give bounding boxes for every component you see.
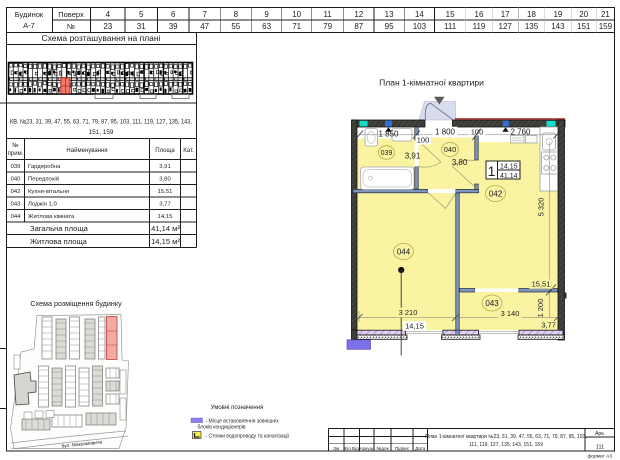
svg-text:1 200: 1 200 [536, 299, 545, 318]
svg-text:15: 15 [446, 10, 455, 19]
svg-text:042: 042 [11, 189, 21, 195]
svg-text:100: 100 [471, 128, 484, 137]
svg-text:20: 20 [579, 10, 588, 19]
svg-text:8: 8 [234, 10, 239, 19]
svg-text:6: 6 [171, 10, 176, 19]
svg-text:Умовні позначення: Умовні позначення [211, 405, 264, 411]
svg-text:39: 39 [169, 22, 178, 31]
svg-text:- Стояки водопроводу та каналі: - Стояки водопроводу та каналізації [206, 434, 290, 440]
svg-text:151: 151 [577, 22, 591, 31]
svg-text:044: 044 [397, 247, 411, 256]
svg-text:55: 55 [231, 22, 240, 31]
svg-text:формат А3: формат А3 [587, 454, 612, 460]
svg-text:прим.: прим. [8, 151, 24, 157]
svg-text:23: 23 [103, 22, 112, 31]
svg-text:135: 135 [525, 22, 539, 31]
svg-text:№: № [67, 22, 75, 31]
svg-text:151, 159: 151, 159 [89, 129, 114, 136]
svg-text:87: 87 [354, 22, 363, 31]
svg-text:1: 1 [488, 163, 496, 179]
svg-text:5 320: 5 320 [537, 198, 546, 217]
svg-text:21: 21 [601, 10, 610, 19]
svg-text:3,91: 3,91 [405, 152, 421, 161]
svg-text:№: № [12, 142, 18, 149]
svg-text:№док: №док [376, 446, 389, 451]
svg-text:044: 044 [11, 214, 22, 220]
svg-text:А-7: А-7 [23, 21, 35, 30]
svg-text:3 210: 3 210 [399, 308, 418, 317]
svg-text:5: 5 [139, 10, 144, 19]
svg-text:040: 040 [11, 177, 22, 183]
svg-text:111: 111 [444, 22, 457, 31]
svg-text:41,14: 41,14 [500, 173, 518, 180]
svg-text:14,15: 14,15 [158, 214, 173, 220]
svg-text:71: 71 [292, 22, 301, 31]
svg-text:18: 18 [527, 10, 536, 19]
svg-text:043: 043 [11, 202, 22, 208]
svg-text:Схема розміщення будинку: Схема розміщення будинку [30, 299, 122, 308]
svg-text:63: 63 [262, 22, 271, 31]
svg-text:12: 12 [354, 10, 363, 19]
svg-text:143: 143 [551, 22, 565, 31]
svg-text:Житлова площа: Житлова площа [30, 237, 88, 246]
svg-text:Гардеробна: Гардеробна [28, 164, 61, 170]
svg-text:9: 9 [264, 10, 269, 19]
svg-text:3,77: 3,77 [159, 202, 170, 208]
svg-text:15,51: 15,51 [158, 189, 173, 195]
svg-text:Кіл.Від: Кіл.Від [344, 446, 359, 451]
svg-text:79: 79 [323, 22, 332, 31]
svg-text:11: 11 [323, 10, 332, 19]
svg-text:КВ. №23, 31, 39, 47, 55, 63, 7: КВ. №23, 31, 39, 47, 55, 63, 71, 79, 87,… [10, 119, 192, 126]
svg-text:1 800: 1 800 [435, 128, 456, 137]
svg-text:040: 040 [444, 145, 457, 154]
svg-text:3,91: 3,91 [159, 164, 170, 170]
svg-text:14,15: 14,15 [405, 322, 424, 331]
svg-text:127: 127 [499, 22, 513, 31]
svg-text:План 1-кімнатної квартири №23,: План 1-кімнатної квартири №23, 31, 39, 4… [425, 434, 586, 440]
svg-text:95: 95 [385, 22, 394, 31]
svg-text:Кухня-вітальня: Кухня-вітальня [28, 189, 69, 195]
svg-text:103: 103 [413, 22, 427, 31]
svg-text:16: 16 [475, 10, 484, 19]
svg-text:Підпис: Підпис [395, 446, 410, 451]
svg-text:Схема розташування на плані: Схема розташування на плані [42, 33, 161, 43]
svg-text:Будинок: Будинок [15, 10, 44, 19]
svg-text:14,15: 14,15 [500, 164, 518, 171]
svg-text:159: 159 [599, 22, 613, 31]
svg-text:Найменування: Найменування [66, 147, 107, 154]
svg-text:План 1-кімнатної квартири: План 1-кімнатної квартири [379, 77, 484, 87]
svg-text:15,51: 15,51 [532, 280, 551, 289]
svg-text:100: 100 [417, 136, 430, 145]
svg-text:Передпокій: Передпокій [28, 176, 59, 183]
svg-text:Поверх: Поверх [58, 10, 84, 19]
svg-text:1 850: 1 850 [378, 130, 399, 139]
svg-text:Житлова кімната: Житлова кімната [28, 214, 75, 220]
svg-text:4: 4 [106, 10, 111, 19]
svg-text:Дата: Дата [415, 446, 426, 451]
svg-text:3 140: 3 140 [501, 309, 520, 318]
svg-text:Загальна площа: Загальна площа [30, 224, 89, 233]
svg-text:14: 14 [415, 10, 424, 19]
svg-text:111: 111 [596, 444, 604, 450]
svg-text:Зм: Зм [333, 446, 339, 451]
svg-text:3,77: 3,77 [541, 321, 556, 330]
svg-text:7: 7 [202, 10, 207, 19]
svg-text:14,15 м²: 14,15 м² [151, 237, 180, 246]
svg-text:13: 13 [385, 10, 394, 19]
svg-text:31: 31 [137, 22, 146, 31]
svg-text:3,80: 3,80 [159, 177, 171, 183]
svg-text:Кат.: Кат. [183, 148, 194, 154]
svg-text:119: 119 [473, 22, 486, 31]
svg-text:Арк.: Арк. [595, 431, 605, 437]
svg-text:Аркуш: Аркуш [360, 446, 374, 451]
svg-text:41,14 м²: 41,14 м² [151, 224, 180, 233]
svg-text:111, 119, 127, 135, 143, 151,: 111, 119, 127, 135, 143, 151, 159 [469, 442, 543, 448]
svg-text:2 760: 2 760 [510, 128, 531, 137]
svg-text:Лоджія 1,0: Лоджія 1,0 [28, 202, 57, 208]
svg-text:3,80: 3,80 [452, 158, 468, 167]
svg-text:блоків кондиціонерів: блоків кондиціонерів [198, 425, 246, 431]
svg-text:Площа: Площа [155, 148, 175, 154]
svg-text:17: 17 [501, 10, 510, 19]
svg-text:10: 10 [292, 10, 301, 19]
svg-text:47: 47 [200, 22, 209, 31]
svg-text:043: 043 [485, 299, 499, 308]
svg-text:19: 19 [553, 10, 562, 19]
svg-text:042: 042 [489, 189, 503, 198]
svg-text:039: 039 [381, 150, 393, 157]
svg-text:039: 039 [11, 164, 21, 170]
